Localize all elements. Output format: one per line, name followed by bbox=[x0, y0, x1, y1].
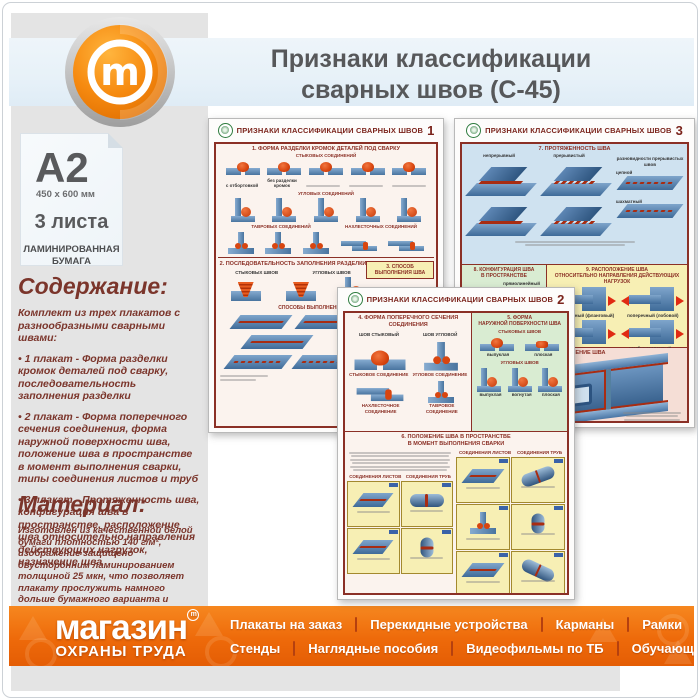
menu-item-flip-devices[interactable]: Перекидные устройства bbox=[357, 617, 540, 632]
legend-placeholder bbox=[515, 241, 635, 243]
right-grid-headers: СОЕДИНЕНИЯ ЛИСТОВ СОЕДИНЕНИЯ ТРУБ bbox=[456, 450, 565, 456]
poster-3-number: 3 bbox=[676, 123, 683, 138]
groove-fill-diagram bbox=[231, 282, 261, 301]
section-4-box: 4. ФОРМА ПОПЕРЕЧНОГО СЕЧЕНИЯ СОЕДИНЕНИЯ … bbox=[345, 313, 472, 431]
tee-beam-diagram bbox=[540, 161, 614, 197]
tee-joints-label: ТАВРОВЫХ СОЕДИНЕНИЙ bbox=[226, 224, 336, 230]
butt-joint-diagram bbox=[267, 161, 301, 176]
section-4-title: 4. ФОРМА ПОПЕРЕЧНОГО СЕЧЕНИЯ СОЕДИНЕНИЯ bbox=[347, 315, 469, 329]
tee-beam-diagram bbox=[465, 161, 539, 197]
position-code-chip bbox=[499, 459, 508, 463]
poster-2-body: 4. ФОРМА ПОПЕРЕЧНОГО СЕЧЕНИЯ СОЕДИНЕНИЯ … bbox=[343, 311, 569, 595]
corner-joint-diagram bbox=[356, 198, 380, 222]
paper-type-line1: ЛАМИНИРОВАННАЯ bbox=[21, 244, 122, 256]
varieties-column: разновидности прерывистых швов цепной ша… bbox=[616, 156, 684, 223]
edge-prep-label: без разделки кромок bbox=[262, 178, 302, 189]
varieties-label: разновидности прерывистых швов bbox=[616, 156, 684, 167]
menu-item-training-programs[interactable]: Обучающие программы bbox=[619, 641, 694, 656]
weld-pass-plate bbox=[224, 355, 293, 369]
weld-position-cell bbox=[511, 551, 565, 596]
cell-caption bbox=[357, 558, 390, 560]
corner-joint-diagram bbox=[231, 198, 255, 222]
cross-section-captions-1: СТЫКОВОЕ СОЕДИНЕНИЕ УГЛОВОЕ СОЕДИНЕНИЕ bbox=[347, 372, 469, 378]
bottom-gray-strip bbox=[11, 666, 620, 691]
list-placeholder bbox=[351, 455, 449, 457]
left-position-grid bbox=[347, 481, 453, 574]
pipe-diagram bbox=[420, 537, 433, 557]
lap-joint-diagram bbox=[388, 241, 424, 254]
butt-joint-diagram bbox=[351, 161, 385, 176]
concave-label: вогнутая bbox=[512, 392, 532, 398]
fillet-surface-label: УГЛОВЫХ ШВОВ bbox=[474, 360, 565, 366]
lap-joint-diagram bbox=[341, 241, 377, 254]
cell-caption bbox=[357, 511, 390, 513]
poster-3-header: ПРИЗНАКИ КЛАССИФИКАЦИИ СВАРНЫХ ШВОВ 3 bbox=[455, 119, 694, 141]
poster-1-header: ПРИЗНАКИ КЛАССИФИКАЦИИ СВАРНЫХ ШВОВ 1 bbox=[209, 119, 443, 141]
tee-joint-caption: ТАВРОВОЕ СОЕДИНЕНИЕ bbox=[414, 403, 469, 414]
section-7-title: 7. ПРОТЯЖЕННОСТЬ ШВА bbox=[464, 146, 685, 153]
pipe-joints-header: СОЕДИНЕНИЯ ТРУБ bbox=[406, 474, 451, 480]
flat-fillet-diagram bbox=[538, 368, 562, 392]
butt-surface-label: СТЫКОВЫХ ШВОВ bbox=[474, 329, 565, 335]
sheet-diagram bbox=[353, 540, 394, 554]
tee-weld-cross-section bbox=[428, 381, 454, 403]
butt-seam-label: ШОВ СТЫКОВЫЙ bbox=[359, 332, 399, 338]
publisher-emblem-icon bbox=[466, 123, 481, 138]
list-placeholder bbox=[349, 452, 451, 454]
weld-position-cell bbox=[511, 504, 565, 550]
content-heading: Содержание: bbox=[18, 273, 200, 300]
svg-text:m: m bbox=[100, 50, 140, 94]
cross-section-labels: ШОВ СТЫКОВЫЙ ШОВ УГЛОВОЙ bbox=[347, 332, 469, 338]
right-position-grid bbox=[456, 457, 565, 596]
footer-menu: Плакаты на заказ Перекидные устройства К… bbox=[217, 612, 688, 660]
footnote-placeholder bbox=[220, 379, 256, 381]
butt-weld-cross-section bbox=[354, 349, 405, 372]
caption-placeholder bbox=[306, 185, 340, 187]
sheet-diagram bbox=[470, 512, 496, 534]
concave-fillet-diagram bbox=[508, 368, 532, 392]
section-6-box: 6. ПОЛОЖЕНИЕ ШВА В ПРОСТРАНСТВЕ В МОМЕНТ… bbox=[345, 432, 567, 595]
weld-position-cell bbox=[456, 457, 510, 503]
convex-fillet-diagram bbox=[477, 368, 501, 392]
note-placeholder-block bbox=[623, 410, 681, 422]
corner-joint-diagram bbox=[272, 198, 296, 222]
page-fold-icon bbox=[108, 133, 123, 148]
corner-joints-label: УГЛОВЫХ СОЕДИНЕНИЙ bbox=[218, 191, 434, 197]
left-grid-headers: СОЕДИНЕНИЯ ЛИСТОВ СОЕДИНЕНИЯ ТРУБ bbox=[347, 474, 453, 480]
cell-caption bbox=[521, 486, 555, 488]
note-placeholder bbox=[623, 412, 681, 414]
menu-item-posters-on-order[interactable]: Плакаты на заказ bbox=[217, 617, 355, 632]
continuous-label: непрерывный bbox=[483, 153, 515, 159]
note-placeholder bbox=[626, 415, 678, 417]
groove-fill-diagram bbox=[286, 282, 316, 301]
weld-pass-plate bbox=[241, 335, 314, 349]
position-code-chip bbox=[442, 530, 451, 534]
pipe-joints-header: СОЕДИНЕНИЯ ТРУБ bbox=[517, 450, 562, 456]
poster-1-title: ПРИЗНАКИ КЛАССИФИКАЦИИ СВАРНЫХ ШВОВ bbox=[237, 126, 424, 135]
corner-joint-diagram bbox=[314, 198, 338, 222]
format-label: A2 bbox=[35, 148, 122, 188]
cross-section-diagrams-1 bbox=[347, 342, 469, 364]
corner-joint-caption: УГЛОВОЕ СОЕДИНЕНИЕ bbox=[413, 372, 468, 378]
extent-labels: непрерывный прерывистый bbox=[464, 153, 604, 159]
list-placeholder bbox=[353, 469, 446, 471]
position-code-chip bbox=[554, 553, 563, 557]
tee-joint-diagram bbox=[228, 232, 254, 254]
chain-seam-plate bbox=[617, 176, 684, 190]
sheet-diagram bbox=[353, 493, 394, 507]
poster-2-header: ПРИЗНАКИ КЛАССИФИКАЦИИ СВАРНЫХ ШВОВ 2 bbox=[338, 288, 574, 310]
footer-menu-row-1: Плакаты на заказ Перекидные устройства К… bbox=[217, 612, 688, 636]
weld-position-cell bbox=[401, 481, 454, 527]
tbeam-row-1 bbox=[464, 161, 614, 197]
convex-butt-diagram bbox=[480, 337, 514, 352]
sheets-count: 3 листа bbox=[21, 211, 122, 234]
tbeam-row-2 bbox=[464, 201, 614, 237]
brand-name: магазин m bbox=[55, 611, 187, 644]
lap-weld-cross-section bbox=[357, 388, 404, 405]
lap-joints-label: НАХЛЕСТОЧНЫХ СОЕДИНЕНИЙ bbox=[336, 224, 426, 230]
butt-joint-diagram bbox=[226, 161, 260, 176]
butt-joint-diagram bbox=[309, 161, 343, 176]
section-2-title: 2. ПОСЛЕДОВАТЕЛЬНОСТЬ ЗАПОЛНЕНИЯ РАЗДЕЛК… bbox=[218, 261, 368, 268]
note-placeholder bbox=[624, 419, 679, 421]
caption-placeholder bbox=[392, 185, 426, 187]
section-7-box: 7. ПРОТЯЖЕННОСТЬ ШВА непрерывный прерыви… bbox=[462, 144, 687, 265]
butt-joints-label: СТЫКОВЫХ СОЕДИНЕНИЙ bbox=[218, 153, 434, 159]
butt-joints-captions: с отбортовкой без разделки кромок bbox=[222, 178, 430, 189]
content-item-2: • 2 плакат - Форма поперечного сечения с… bbox=[18, 411, 200, 486]
fillet-surface-labels: выпуклая вогнутая плоская bbox=[474, 392, 565, 398]
footnote-placeholder bbox=[220, 375, 268, 377]
edge-prep-label: с отбортовкой bbox=[222, 183, 262, 189]
corner-joints-row bbox=[222, 198, 430, 222]
fillet-weld-cross-section bbox=[424, 342, 458, 371]
footer-menu-row-2: Стенды Наглядные пособия Видеофильмы по … bbox=[217, 636, 688, 660]
sequence-labels: СТЫКОВЫХ ШВОВ УГЛОВЫХ ШВОВ bbox=[218, 270, 368, 276]
sheet-diagram bbox=[462, 469, 505, 483]
site-logo[interactable]: m bbox=[63, 15, 177, 129]
load-direction-diagram bbox=[622, 320, 680, 346]
butt-surface-labels: выпуклая плоская bbox=[474, 352, 565, 358]
weld-position-cell bbox=[347, 481, 400, 527]
page-title-line1: Признаки классификации bbox=[171, 44, 691, 75]
weld-position-cell bbox=[347, 528, 400, 574]
position-code-chip bbox=[499, 506, 508, 510]
position-code-chip bbox=[554, 506, 563, 510]
corner-joint-diagram bbox=[397, 198, 421, 222]
cell-caption bbox=[466, 581, 500, 583]
material-heading: Материал: bbox=[18, 491, 200, 518]
flat-butt-diagram bbox=[525, 337, 559, 352]
section-6-title-line1: 6. ПОЛОЖЕНИЕ ШВА В ПРОСТРАНСТВЕ bbox=[347, 434, 565, 441]
cell-caption bbox=[521, 533, 555, 535]
section-4-5-row: 4. ФОРМА ПОПЕРЕЧНОГО СЕЧЕНИЯ СОЕДИНЕНИЯ … bbox=[345, 313, 567, 432]
cell-caption bbox=[466, 487, 500, 489]
page: m Признаки классификации сварных швов (С… bbox=[2, 2, 698, 698]
tee-lap-row bbox=[222, 232, 430, 254]
poster-2-title: ПРИЗНАКИ КЛАССИФИКАЦИИ СВАРНЫХ ШВОВ bbox=[367, 295, 554, 304]
cell-caption bbox=[521, 580, 555, 582]
butt-joint-caption: СТЫКОВОЕ СОЕДИНЕНИЕ bbox=[349, 372, 408, 378]
publisher-emblem-icon bbox=[218, 123, 233, 138]
section-6-title-line2: В МОМЕНТ ВЫПОЛНЕНИЯ СВАРКИ bbox=[347, 441, 565, 448]
position-code-chip bbox=[554, 459, 563, 463]
butt-surface-row bbox=[474, 337, 565, 352]
convex-label: выпуклая bbox=[487, 352, 509, 358]
positions-right-column: СОЕДИНЕНИЯ ЛИСТОВ СОЕДИНЕНИЯ ТРУБ bbox=[456, 450, 565, 595]
intermittent-label: прерывистый bbox=[553, 153, 584, 159]
divider bbox=[218, 257, 434, 258]
poster-1-number: 1 bbox=[427, 123, 434, 138]
content-intro: Комплект из трех плакатов с разнообразны… bbox=[18, 307, 200, 345]
page-title-line2: сварных швов (С-45) bbox=[171, 75, 691, 106]
butt-seams-label: СТЫКОВЫХ ШВОВ bbox=[235, 270, 278, 276]
page-title: Признаки классификации сварных швов (С-4… bbox=[171, 44, 691, 106]
format-card: A2 450 x 600 мм 3 листа ЛАМИНИРОВАННАЯ Б… bbox=[20, 133, 123, 266]
list-placeholder bbox=[350, 459, 451, 461]
trademark-icon: m bbox=[187, 609, 199, 621]
poster-2: ПРИЗНАКИ КЛАССИФИКАЦИИ СВАРНЫХ ШВОВ 2 4.… bbox=[337, 287, 575, 600]
list-placeholder bbox=[350, 466, 450, 468]
weld-pass-plate bbox=[229, 315, 292, 329]
footer-bar: магазин m ОХРАНЫ ТРУДА Плакаты на заказ … bbox=[9, 606, 694, 666]
menu-item-safety-videos[interactable]: Видеофильмы по ТБ bbox=[453, 641, 616, 656]
sheet-joints-header: СОЕДИНЕНИЯ ЛИСТОВ bbox=[349, 474, 401, 480]
tee-beam-diagram bbox=[465, 201, 539, 237]
transverse-label: поперечный (лобовой) bbox=[627, 313, 678, 319]
cell-caption bbox=[466, 538, 500, 540]
section-5-title-line2: НАРУЖНОЙ ПОВЕРХНОСТИ ШВА bbox=[474, 321, 565, 327]
legend-placeholder bbox=[525, 244, 625, 246]
tee-lap-labels: ТАВРОВЫХ СОЕДИНЕНИЙ НАХЛЕСТОЧНЫХ СОЕДИНЕ… bbox=[226, 224, 426, 230]
sheet-joints-header: СОЕДИНЕНИЯ ЛИСТОВ bbox=[459, 450, 511, 456]
section-8-title-line2: В ПРОСТРАНСТВЕ bbox=[464, 273, 544, 279]
ibeam-rib bbox=[604, 369, 611, 410]
positions-left-column: СОЕДИНЕНИЯ ЛИСТОВ СОЕДИНЕНИЯ ТРУБ bbox=[347, 450, 453, 595]
m-logo-icon: m bbox=[63, 15, 177, 129]
brand-name-text: магазин bbox=[55, 608, 187, 647]
section-5-box: 5. ФОРМА НАРУЖНОЙ ПОВЕРХНОСТИ ШВА СТЫКОВ… bbox=[472, 313, 567, 431]
straight-label: прямолинейный bbox=[464, 281, 540, 287]
pipe-diagram bbox=[410, 494, 444, 507]
cross-section-diagrams-2 bbox=[347, 381, 469, 403]
menu-item-pockets[interactable]: Карманы bbox=[543, 617, 628, 632]
staggered-seam-plate bbox=[617, 204, 684, 218]
tee-joint-diagram bbox=[303, 232, 329, 254]
cell-caption bbox=[410, 557, 443, 559]
load-direction-diagram bbox=[622, 287, 680, 313]
menu-item-stands[interactable]: Стенды bbox=[217, 641, 293, 656]
weld-position-cell bbox=[401, 528, 454, 574]
flat-label: плоская bbox=[534, 352, 552, 358]
weld-position-cell bbox=[456, 551, 510, 596]
format-dimensions: 450 x 600 мм bbox=[36, 189, 122, 200]
butt-joints-row bbox=[222, 161, 430, 176]
tee-beam-diagram bbox=[540, 201, 614, 237]
sheet-diagram bbox=[462, 563, 505, 577]
pipe-diagram bbox=[532, 513, 545, 533]
paper-type-line2: БУМАГА bbox=[21, 256, 122, 268]
weld-position-cell bbox=[511, 457, 565, 503]
tee-joint-diagram bbox=[265, 232, 291, 254]
section-3-box: 3. СПОСОБ ВЫПОЛНЕНИЯ ШВА bbox=[366, 261, 434, 279]
poster-3-title: ПРИЗНАКИ КЛАССИФИКАЦИИ СВАРНЫХ ШВОВ bbox=[485, 126, 672, 135]
butt-joint-diagram bbox=[392, 161, 426, 176]
corner-seams-label: УГЛОВЫХ ШВОВ bbox=[313, 270, 351, 276]
pipe-diagram bbox=[520, 464, 556, 488]
section-6-content: СОЕДИНЕНИЯ ЛИСТОВ СОЕДИНЕНИЯ ТРУБ СОЕД bbox=[347, 450, 565, 595]
footer-brand[interactable]: магазин m ОХРАНЫ ТРУДА bbox=[31, 611, 211, 659]
flat-label: плоская bbox=[542, 392, 560, 398]
position-code-chip bbox=[389, 530, 398, 534]
section-1-title: 1. ФОРМА РАЗДЕЛКИ КРОМОК ДЕТАЛЕЙ ПОД СВА… bbox=[218, 146, 434, 153]
chain-label: цепной bbox=[616, 170, 684, 176]
poster-2-number: 2 bbox=[557, 292, 564, 307]
weld-position-cell bbox=[456, 504, 510, 550]
position-code-chip bbox=[442, 483, 451, 487]
cell-caption bbox=[410, 510, 443, 512]
menu-item-visual-aids[interactable]: Наглядные пособия bbox=[295, 641, 451, 656]
caption-placeholder bbox=[349, 185, 383, 187]
paper-type: ЛАМИНИРОВАННАЯ БУМАГА bbox=[21, 244, 122, 268]
convex-label: выпуклая bbox=[479, 392, 501, 398]
publisher-emblem-icon bbox=[348, 292, 363, 307]
section-3-title: 3. СПОСОБ ВЫПОЛНЕНИЯ ШВА bbox=[369, 264, 431, 276]
position-code-chip bbox=[389, 483, 398, 487]
section-9-title-line2: ОТНОСИТЕЛЬНО НАПРАВЛЕНИЯ ДЕЙСТВУЮЩИХ НАГ… bbox=[549, 273, 685, 285]
list-placeholder bbox=[352, 462, 447, 464]
fillet-seam-label: ШОВ УГЛОВОЙ bbox=[423, 332, 457, 338]
menu-item-frames[interactable]: Рамки bbox=[629, 617, 694, 632]
position-code-chip bbox=[499, 553, 508, 557]
content-item-1: • 1 плакат - Форма разделки кромок детал… bbox=[18, 353, 200, 403]
fillet-surface-row bbox=[474, 368, 565, 392]
